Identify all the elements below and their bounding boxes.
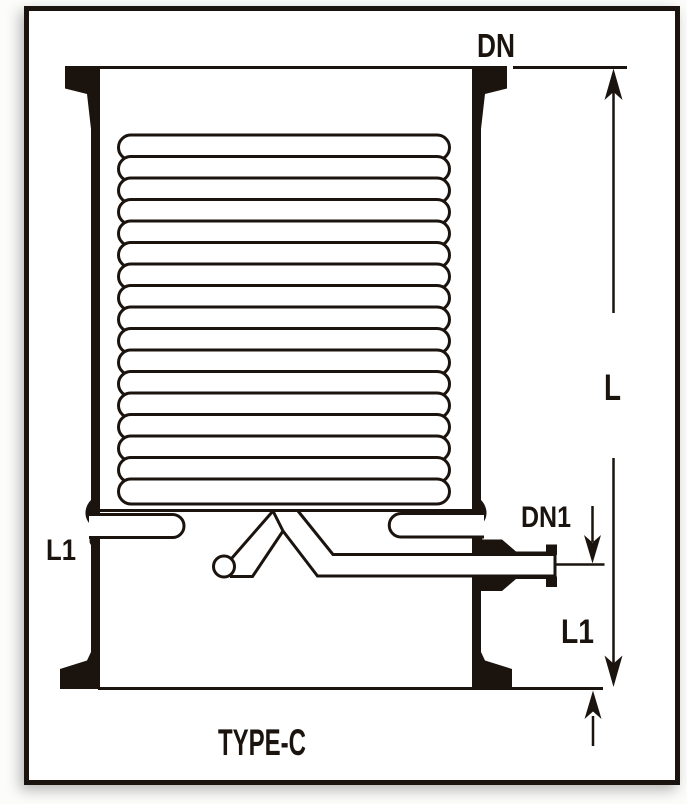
outlet-tube-flange-bottom — [546, 577, 557, 588]
type-c-condenser-drawing: DN DN1 L L1 L1 TYPE-C — [0, 0, 687, 804]
diagram-page: DN DN1 L L1 L1 TYPE-C — [0, 0, 687, 804]
label-dn: DN — [477, 27, 515, 64]
label-type-c: TYPE-C — [218, 722, 306, 763]
label-l1-right: L1 — [561, 613, 594, 651]
coil-turn — [119, 479, 450, 504]
coil-stub-left — [89, 515, 184, 538]
label-dn1: DN1 — [521, 501, 571, 534]
cooling-coil — [119, 135, 450, 504]
label-l1-left: L1 — [46, 534, 76, 567]
label-l: L — [604, 367, 621, 408]
drain-mouth-circle — [214, 556, 235, 577]
coil-stub-right — [389, 514, 484, 538]
